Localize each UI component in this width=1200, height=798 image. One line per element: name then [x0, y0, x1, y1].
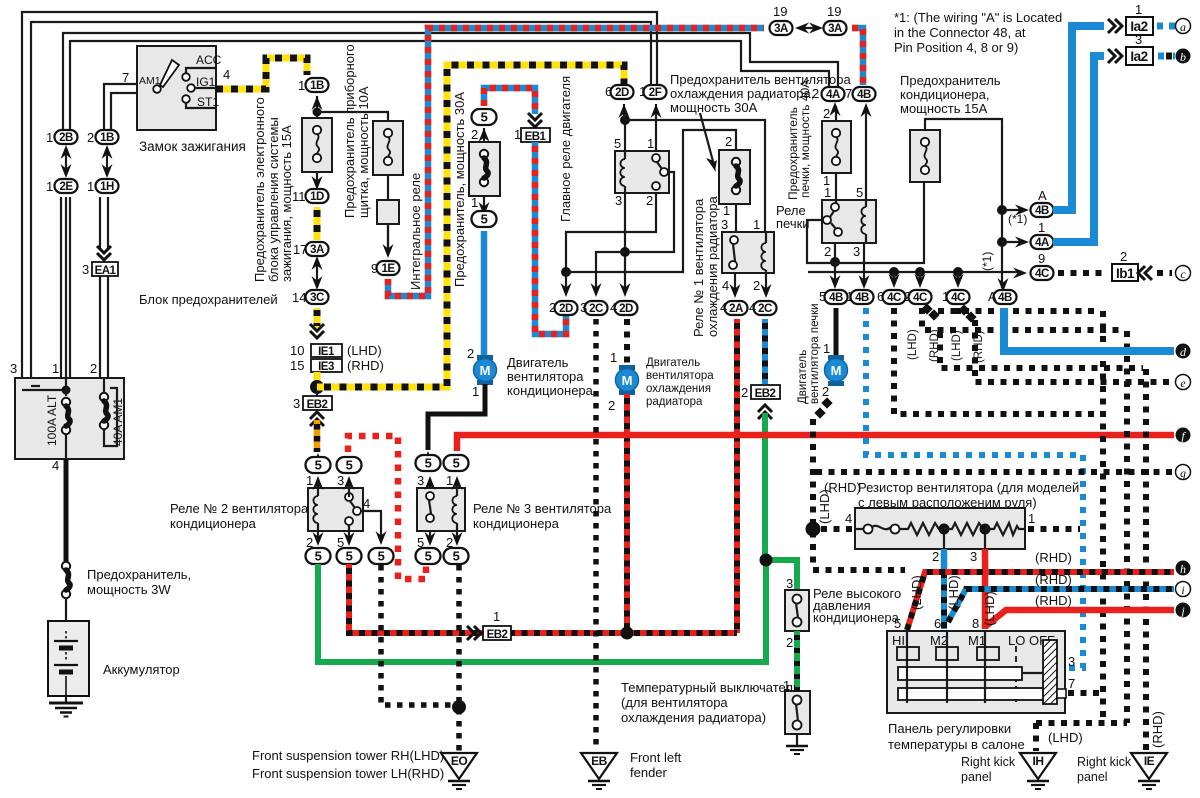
svg-text:вентилятора: вентилятора — [646, 370, 714, 382]
svg-text:Ia2: Ia2 — [1130, 49, 1147, 64]
svg-text:b: b — [1180, 50, 1186, 64]
svg-text:(RHD): (RHD) — [1035, 572, 1072, 587]
svg-text:Предохранитель,: Предохранитель, — [87, 567, 191, 582]
svg-text:печки: печки — [776, 216, 810, 231]
svg-text:2D: 2D — [559, 303, 573, 315]
svg-text:вентилятора: вентилятора — [507, 369, 584, 384]
svg-text:3C: 3C — [310, 292, 324, 304]
svg-text:(*1): (*1) — [980, 252, 994, 271]
svg-text:4C: 4C — [887, 292, 901, 304]
svg-text:4C: 4C — [951, 292, 965, 304]
svg-text:3: 3 — [721, 217, 728, 232]
svg-text:4: 4 — [845, 511, 852, 526]
svg-text:(RHD): (RHD) — [929, 329, 941, 362]
svg-text:3A: 3A — [774, 23, 788, 35]
svg-text:Предохранитель вентилятора: Предохранитель вентилятора — [670, 72, 851, 87]
svg-text:2: 2 — [471, 127, 478, 142]
svg-text:3: 3 — [580, 300, 587, 315]
svg-text:6: 6 — [877, 289, 884, 304]
svg-text:4B: 4B — [829, 292, 843, 304]
svg-text:мощность 30А: мощность 30А — [670, 100, 758, 115]
svg-text:Pin Position 4, 8 or 9): Pin Position 4, 8 or 9) — [894, 40, 1018, 55]
svg-text:Блок предохранителей: Блок предохранителей — [139, 292, 278, 307]
svg-text:1: 1 — [1028, 511, 1035, 526]
svg-text:3A: 3A — [310, 244, 324, 256]
svg-text:1: 1 — [46, 130, 53, 145]
svg-text:кондиционера: кондиционера — [813, 610, 900, 625]
svg-text:15: 15 — [290, 358, 304, 373]
svg-text:(LHD): (LHD) — [907, 329, 919, 360]
svg-text:panel: panel — [961, 770, 992, 784]
svg-text:4C: 4C — [913, 292, 927, 304]
svg-text:1: 1 — [87, 179, 94, 194]
svg-text:3: 3 — [417, 473, 424, 488]
svg-text:1: 1 — [753, 217, 760, 232]
svg-text:Front suspension tower LH(RHD): Front suspension tower LH(RHD) — [252, 766, 444, 781]
svg-text:8: 8 — [972, 616, 979, 631]
svg-text:2: 2 — [822, 384, 829, 399]
svg-text:(LHD): (LHD) — [1048, 730, 1083, 745]
svg-text:1: 1 — [471, 195, 478, 210]
svg-text:5: 5 — [894, 616, 901, 631]
svg-text:M2: M2 — [930, 633, 948, 648]
svg-text:мощность 3W: мощность 3W — [87, 582, 171, 597]
svg-text:2: 2 — [87, 130, 94, 145]
svg-text:2: 2 — [725, 134, 732, 149]
svg-text:panel: panel — [1077, 770, 1108, 784]
svg-text:4B: 4B — [998, 292, 1012, 304]
svg-text:Предохранитель: Предохранитель — [900, 73, 1001, 88]
svg-text:4B: 4B — [855, 292, 869, 304]
svg-text:(*1): (*1) — [1008, 212, 1027, 226]
svg-text:2: 2 — [824, 244, 831, 259]
svg-text:2: 2 — [608, 398, 615, 413]
svg-text:3: 3 — [970, 549, 977, 564]
svg-text:EO: EO — [451, 754, 468, 768]
svg-text:IH: IH — [1033, 754, 1044, 768]
svg-text:2: 2 — [646, 193, 653, 208]
svg-text:7: 7 — [1068, 676, 1075, 691]
svg-text:3: 3 — [615, 193, 622, 208]
svg-text:Замок зажигания: Замок зажигания — [139, 139, 246, 154]
svg-text:IE: IE — [1144, 754, 1155, 768]
svg-text:2: 2 — [741, 385, 748, 400]
svg-text:4B: 4B — [857, 89, 871, 101]
svg-text:14: 14 — [292, 290, 306, 305]
svg-text:d: d — [1180, 345, 1187, 359]
svg-text:ACC: ACC — [196, 53, 222, 67]
svg-text:2: 2 — [90, 361, 97, 376]
svg-text:fender: fender — [630, 765, 668, 780]
svg-text:(LHD): (LHD) — [982, 591, 997, 626]
svg-text:Front suspension tower RH(LHD): Front suspension tower RH(LHD) — [252, 748, 444, 763]
svg-text:мощность 15А: мощность 15А — [900, 101, 988, 116]
svg-text:Предохранитель электронного: Предохранитель электронного — [252, 97, 267, 282]
svg-text:1H: 1H — [100, 181, 114, 193]
svg-text:3: 3 — [82, 262, 89, 277]
svg-text:EB1: EB1 — [525, 131, 547, 143]
svg-text:Главное реле двигателя: Главное реле двигателя — [558, 76, 573, 222]
svg-text:1: 1 — [823, 341, 830, 356]
svg-text:1: 1 — [610, 350, 617, 365]
svg-text:1: 1 — [942, 289, 949, 304]
svg-text:4: 4 — [749, 300, 756, 315]
svg-text:1: 1 — [298, 78, 305, 93]
svg-text:17: 17 — [293, 242, 307, 257]
svg-text:9: 9 — [371, 261, 378, 276]
svg-text:g: g — [1180, 466, 1186, 480]
svg-text:1: 1 — [514, 127, 521, 142]
svg-text:4C: 4C — [1035, 268, 1049, 280]
svg-text:кондиционера: кондиционера — [507, 383, 594, 398]
svg-text:1: 1 — [823, 173, 830, 188]
svg-text:Температурный выключатель: Температурный выключатель — [621, 680, 800, 695]
svg-text:Аккумулятор: Аккумулятор — [103, 662, 180, 677]
svg-text:1E: 1E — [381, 263, 395, 275]
svg-text:1: 1 — [639, 84, 646, 99]
svg-text:Двигатель: Двигатель — [797, 350, 809, 404]
svg-text:2D: 2D — [619, 303, 633, 315]
svg-text:10: 10 — [290, 343, 304, 358]
svg-text:IE3: IE3 — [318, 361, 334, 373]
svg-text:охлаждения: охлаждения — [646, 383, 711, 395]
svg-text:4: 4 — [52, 458, 59, 473]
svg-text:HI: HI — [892, 633, 905, 648]
svg-text:5: 5 — [819, 289, 826, 304]
svg-text:(LHD): (LHD) — [347, 343, 382, 358]
svg-text:4: 4 — [720, 300, 727, 315]
svg-text:3A: 3A — [828, 23, 842, 35]
svg-text:i: i — [1181, 583, 1184, 597]
svg-text:7: 7 — [122, 70, 129, 85]
svg-text:3: 3 — [786, 576, 793, 591]
svg-text:1: 1 — [446, 473, 453, 488]
svg-text:5: 5 — [614, 136, 621, 151]
svg-text:2: 2 — [823, 106, 830, 121]
svg-text:3: 3 — [293, 396, 300, 411]
svg-text:2: 2 — [932, 549, 939, 564]
svg-text:Реле № 2 вентилятора: Реле № 2 вентилятора — [170, 501, 309, 516]
svg-text:2: 2 — [904, 289, 911, 304]
svg-text:(LHD): (LHD) — [909, 575, 924, 610]
svg-text:2: 2 — [753, 278, 760, 293]
svg-text:кондиционера,: кондиционера, — [900, 87, 990, 102]
svg-text:1: 1 — [846, 289, 853, 304]
svg-text:2D: 2D — [615, 87, 629, 99]
svg-text:2F: 2F — [649, 87, 662, 99]
svg-text:6: 6 — [934, 616, 941, 631]
svg-text:11: 11 — [292, 189, 306, 204]
svg-text:2C: 2C — [758, 303, 772, 315]
svg-text:печки, мощность 40А: печки, мощность 40А — [798, 80, 812, 198]
svg-text:Предохранитель приборного: Предохранитель приборного — [342, 44, 357, 218]
svg-text:(RHD): (RHD) — [1035, 593, 1072, 608]
svg-text:1: 1 — [306, 473, 313, 488]
svg-text:2: 2 — [1120, 249, 1127, 264]
svg-text:Резистор вентилятора (для моде: Резистор вентилятора (для моделей — [858, 480, 1079, 495]
svg-text:2C: 2C — [589, 303, 603, 315]
svg-text:Панель регулировки: Панель регулировки — [888, 721, 1011, 736]
svg-text:Предохранитель, мощность 30А: Предохранитель, мощность 30А — [452, 92, 467, 287]
svg-text:2: 2 — [812, 86, 819, 101]
svg-text:4: 4 — [610, 300, 617, 315]
svg-text:Right kick: Right kick — [1077, 755, 1132, 769]
svg-text:EB2: EB2 — [755, 388, 776, 400]
svg-text:2: 2 — [786, 635, 793, 650]
svg-text:вентилятора печки: вентилятора печки — [809, 303, 821, 404]
svg-text:Двигатель: Двигатель — [507, 355, 569, 370]
svg-text:Интегральное реле: Интегральное реле — [408, 173, 423, 290]
svg-text:радиатора: радиатора — [646, 396, 703, 408]
svg-text:3: 3 — [337, 473, 344, 488]
svg-text:кондиционера: кондиционера — [170, 516, 257, 531]
svg-text:(LHD): (LHD) — [946, 575, 961, 610]
svg-text:6: 6 — [605, 84, 612, 99]
svg-text:Front left: Front left — [630, 750, 682, 765]
svg-text:EB2: EB2 — [487, 629, 508, 641]
svg-text:кондиционера: кондиционера — [473, 516, 560, 531]
svg-text:охлаждения радиатора): охлаждения радиатора) — [621, 710, 766, 725]
svg-text:(RHD): (RHD) — [347, 358, 384, 373]
svg-text:4: 4 — [363, 496, 370, 511]
svg-text:охлаждения радиатора,: охлаждения радиатора, — [670, 86, 814, 101]
svg-text:1: 1 — [46, 179, 53, 194]
svg-text:EA1: EA1 — [95, 265, 117, 277]
svg-text:h: h — [1180, 562, 1186, 576]
svg-text:*1: (The wiring "A" is Locate: *1: (The wiring "A" is Located — [894, 10, 1062, 25]
svg-text:(RHD): (RHD) — [973, 330, 985, 363]
svg-text:(LHD): (LHD) — [817, 489, 832, 524]
svg-text:3: 3 — [10, 361, 17, 376]
svg-text:1: 1 — [1038, 220, 1045, 235]
svg-text:A: A — [988, 289, 997, 304]
svg-text:19: 19 — [773, 4, 787, 19]
svg-text:100A ALT: 100A ALT — [45, 394, 59, 446]
svg-text:3: 3 — [853, 244, 860, 259]
svg-text:Ib1: Ib1 — [1116, 266, 1135, 281]
svg-text:2E: 2E — [59, 181, 73, 193]
svg-text:3: 3 — [1135, 32, 1142, 47]
svg-text:1: 1 — [52, 361, 59, 376]
svg-text:M1: M1 — [968, 633, 986, 648]
svg-text:щитка, мощность 10А: щитка, мощность 10А — [356, 86, 371, 218]
svg-text:температуры в салоне: температуры в салоне — [888, 737, 1025, 752]
svg-text:1: 1 — [723, 203, 730, 218]
svg-text:1: 1 — [493, 609, 500, 624]
svg-text:(RHD): (RHD) — [1035, 550, 1072, 565]
svg-text:Реле № 3 вентилятора: Реле № 3 вентилятора — [473, 501, 612, 516]
svg-text:2B: 2B — [59, 132, 73, 144]
svg-text:IE1: IE1 — [318, 346, 335, 358]
svg-text:2A: 2A — [729, 303, 743, 315]
svg-text:(RHD): (RHD) — [1150, 711, 1165, 748]
svg-text:EB2: EB2 — [307, 399, 328, 411]
svg-text:(LHD): (LHD) — [951, 330, 963, 361]
svg-text:5: 5 — [856, 185, 863, 200]
svg-text:1B: 1B — [100, 132, 114, 144]
svg-text:e: e — [1180, 376, 1186, 390]
svg-text:a: a — [1180, 20, 1186, 34]
svg-text:c: c — [1180, 267, 1186, 281]
svg-text:2: 2 — [467, 346, 474, 361]
svg-text:Right kick: Right kick — [961, 755, 1016, 769]
svg-text:in the Connector 48, at: in the Connector 48, at — [894, 25, 1026, 40]
svg-text:1: 1 — [647, 136, 654, 151]
svg-text:M: M — [480, 363, 491, 378]
svg-text:охлаждения радиатора: охлаждения радиатора — [705, 195, 720, 337]
svg-text:(для вентилятора: (для вентилятора — [621, 695, 728, 710]
svg-text:7: 7 — [845, 86, 852, 101]
svg-text:4B: 4B — [1035, 205, 1049, 217]
svg-text:9: 9 — [1038, 251, 1045, 266]
svg-text:A: A — [1038, 188, 1047, 203]
svg-text:EB: EB — [591, 754, 608, 768]
svg-text:3: 3 — [1068, 654, 1075, 669]
svg-text:M: M — [831, 363, 842, 378]
svg-text:4: 4 — [722, 278, 729, 293]
svg-text:1D: 1D — [310, 191, 324, 203]
svg-text:M: M — [622, 373, 633, 388]
svg-text:4A: 4A — [1035, 237, 1049, 249]
svg-text:Реле № 1 вентилятора: Реле № 1 вентилятора — [691, 198, 706, 337]
svg-text:1B: 1B — [310, 80, 324, 92]
svg-text:19: 19 — [827, 4, 841, 19]
svg-text:1: 1 — [1135, 2, 1142, 17]
svg-text:4A: 4A — [826, 89, 840, 101]
svg-text:4: 4 — [223, 67, 230, 82]
svg-text:1: 1 — [472, 384, 479, 399]
svg-text:Двигатель: Двигатель — [646, 357, 700, 369]
svg-text:2: 2 — [549, 300, 556, 315]
